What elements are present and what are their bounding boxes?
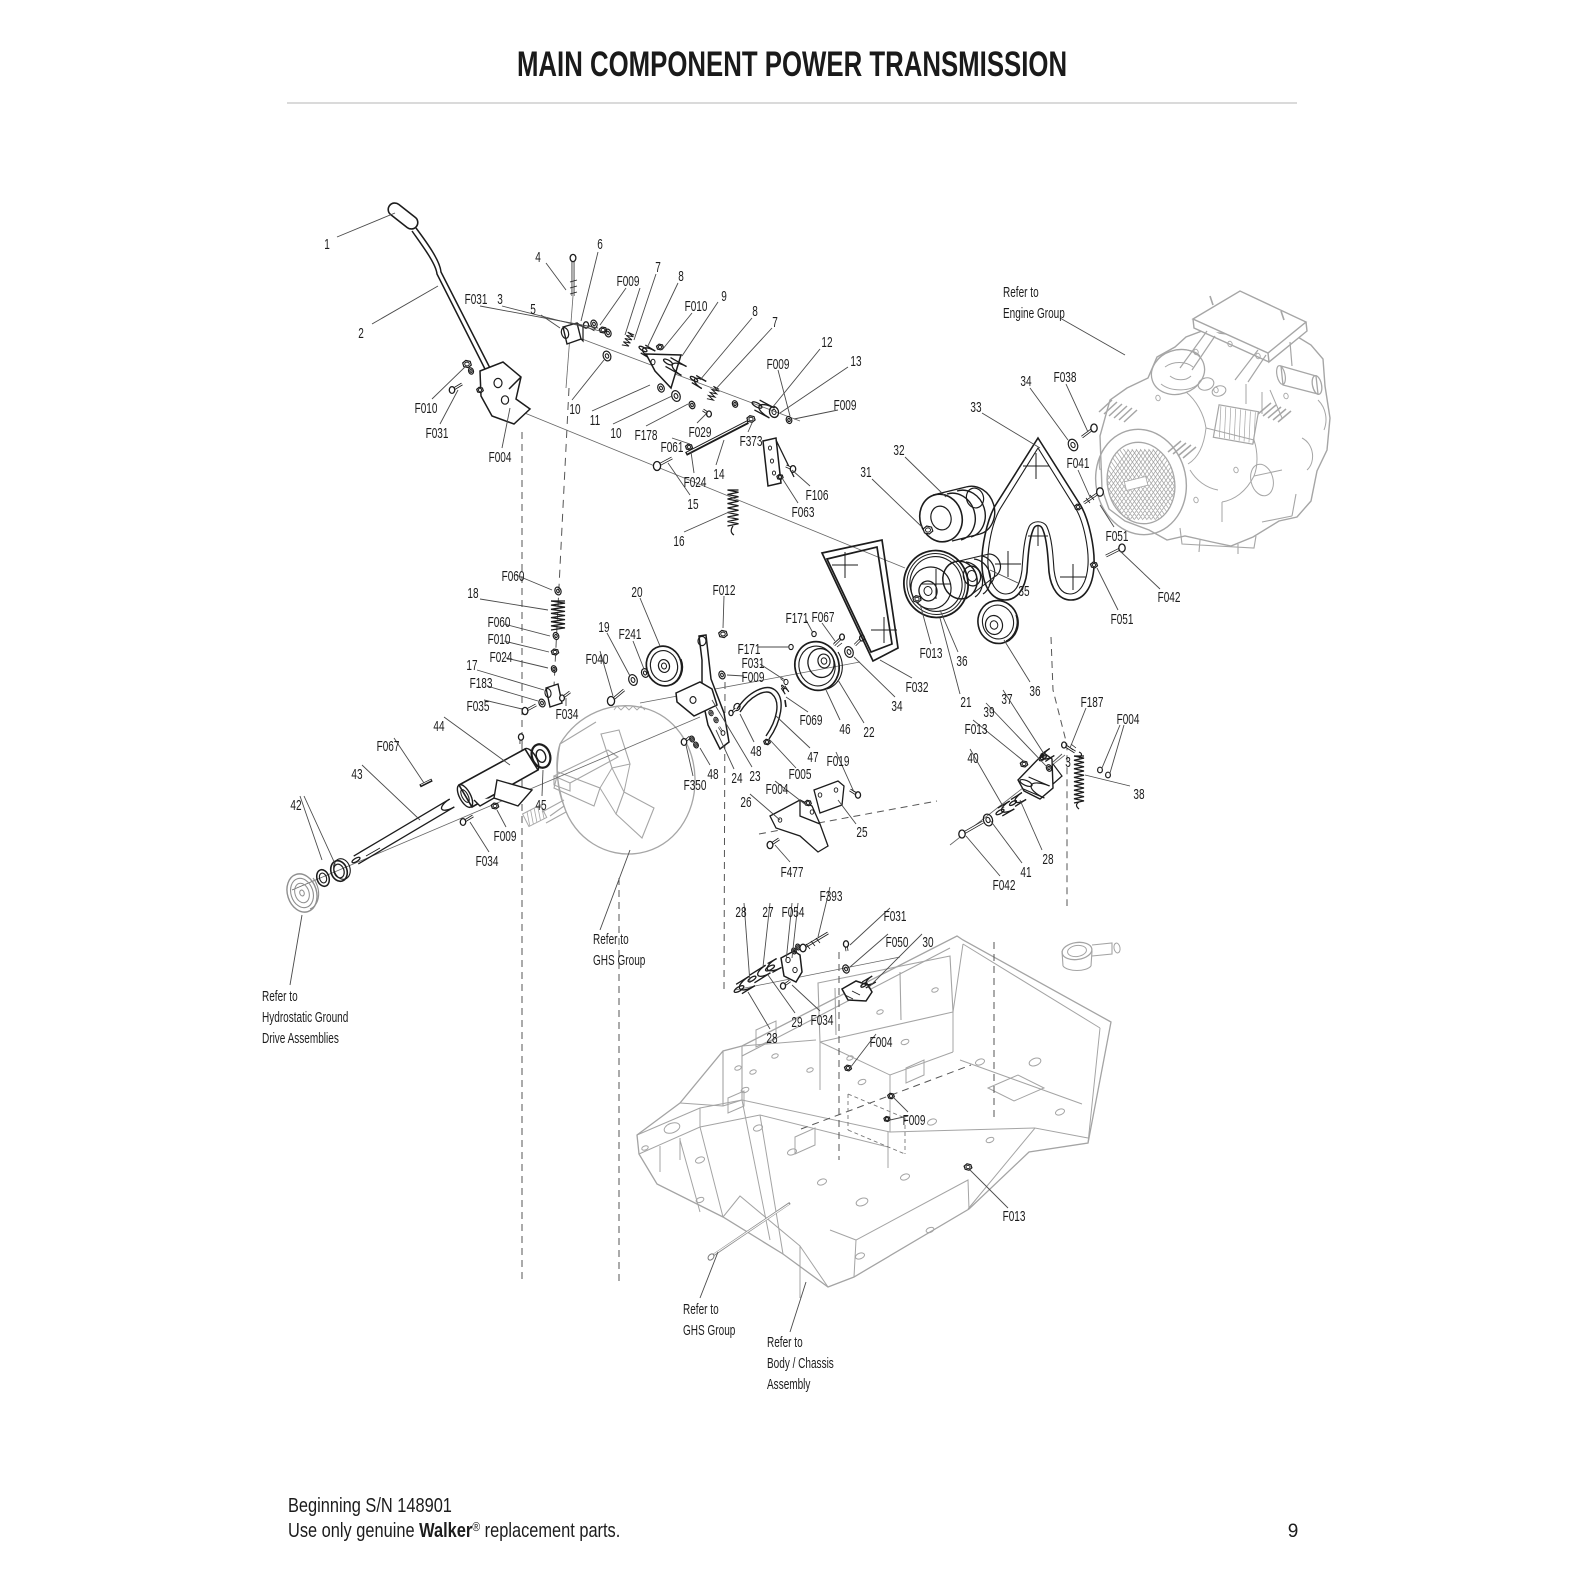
svg-text:F019: F019: [827, 752, 850, 770]
svg-text:10: 10: [610, 424, 621, 442]
svg-text:24: 24: [731, 769, 742, 787]
svg-text:Refer to: Refer to: [767, 1333, 803, 1351]
svg-text:F069: F069: [800, 711, 823, 729]
svg-text:32: 32: [893, 441, 904, 459]
svg-text:F034: F034: [556, 705, 579, 723]
svg-text:F042: F042: [1158, 588, 1181, 606]
svg-text:F051: F051: [1111, 610, 1134, 628]
svg-text:F024: F024: [684, 473, 707, 491]
svg-text:F004: F004: [1117, 710, 1140, 728]
svg-text:F050: F050: [886, 933, 909, 951]
svg-text:F010: F010: [488, 630, 511, 648]
svg-text:35: 35: [1018, 582, 1029, 600]
svg-text:F060: F060: [502, 567, 525, 585]
svg-text:30: 30: [922, 933, 933, 951]
svg-text:F477: F477: [781, 863, 804, 881]
svg-text:33: 33: [970, 398, 981, 416]
svg-text:40: 40: [967, 749, 978, 767]
svg-text:20: 20: [631, 583, 642, 601]
svg-text:16: 16: [673, 532, 684, 550]
svg-text:34: 34: [1020, 372, 1031, 390]
svg-text:11: 11: [590, 411, 600, 429]
svg-text:F061: F061: [661, 438, 684, 456]
svg-text:45: 45: [535, 796, 546, 814]
svg-text:F029: F029: [689, 423, 712, 441]
svg-text:F054: F054: [782, 903, 805, 921]
svg-text:F009: F009: [742, 668, 765, 686]
svg-text:F067: F067: [812, 608, 835, 626]
svg-text:7: 7: [772, 313, 778, 331]
svg-text:F009: F009: [903, 1111, 926, 1129]
svg-text:6: 6: [597, 235, 603, 253]
svg-text:F009: F009: [494, 827, 517, 845]
svg-text:Refer to: Refer to: [1003, 283, 1039, 301]
svg-text:F040: F040: [586, 650, 609, 668]
svg-text:F183: F183: [470, 674, 493, 692]
svg-text:Refer to: Refer to: [593, 930, 629, 948]
svg-text:F009: F009: [617, 272, 640, 290]
svg-text:F041: F041: [1067, 454, 1090, 472]
svg-text:F012: F012: [713, 581, 736, 599]
svg-text:F013: F013: [965, 720, 988, 738]
svg-text:8: 8: [678, 267, 684, 285]
svg-text:41: 41: [1020, 863, 1031, 881]
svg-text:F373: F373: [740, 432, 763, 450]
svg-text:F060: F060: [488, 613, 511, 631]
svg-text:Beginning S/N 148901: Beginning S/N 148901: [288, 1493, 452, 1516]
svg-text:F051: F051: [1106, 527, 1129, 545]
svg-text:F004: F004: [870, 1033, 893, 1051]
svg-text:F241: F241: [619, 625, 642, 643]
svg-text:14: 14: [713, 465, 724, 483]
svg-text:28: 28: [1042, 850, 1053, 868]
svg-text:48: 48: [750, 742, 761, 760]
svg-text:F031: F031: [465, 290, 488, 308]
svg-text:Body / Chassis: Body / Chassis: [767, 1354, 834, 1372]
svg-text:F067: F067: [377, 737, 400, 755]
svg-text:29: 29: [791, 1013, 802, 1031]
svg-text:GHS Group: GHS Group: [593, 951, 645, 969]
svg-text:GHS Group: GHS Group: [683, 1321, 735, 1339]
svg-text:34: 34: [891, 697, 902, 715]
svg-text:25: 25: [856, 823, 867, 841]
svg-text:46: 46: [839, 720, 850, 738]
svg-text:F178: F178: [635, 426, 658, 444]
svg-text:F038: F038: [1054, 368, 1077, 386]
svg-text:Refer to: Refer to: [262, 987, 298, 1005]
svg-text:48: 48: [707, 765, 718, 783]
svg-text:36: 36: [956, 652, 967, 670]
svg-text:1: 1: [324, 235, 330, 253]
svg-text:28: 28: [735, 903, 746, 921]
svg-text:F010: F010: [685, 297, 708, 315]
svg-text:F106: F106: [806, 486, 829, 504]
svg-text:12: 12: [821, 333, 832, 351]
svg-text:F350: F350: [684, 776, 707, 794]
svg-text:F187: F187: [1081, 693, 1104, 711]
svg-text:Hydrostatic Ground: Hydrostatic Ground: [262, 1008, 348, 1026]
svg-text:Use only genuine Walker® repla: Use only genuine Walker® replacement par…: [288, 1518, 620, 1541]
svg-text:F024: F024: [490, 648, 513, 666]
svg-text:43: 43: [351, 765, 362, 783]
svg-text:10: 10: [569, 400, 580, 418]
svg-text:13: 13: [850, 352, 861, 370]
svg-text:39: 39: [983, 703, 994, 721]
svg-text:F063: F063: [792, 503, 815, 521]
svg-text:3: 3: [497, 290, 503, 308]
svg-text:F393: F393: [820, 887, 843, 905]
svg-text:F032: F032: [906, 678, 929, 696]
svg-text:F010: F010: [415, 399, 438, 417]
svg-text:38: 38: [1133, 785, 1144, 803]
svg-text:F034: F034: [476, 852, 499, 870]
svg-text:F004: F004: [766, 780, 789, 798]
svg-text:F013: F013: [920, 644, 943, 662]
svg-text:26: 26: [740, 793, 751, 811]
svg-text:18: 18: [467, 584, 478, 602]
svg-text:7: 7: [655, 258, 661, 276]
svg-text:17: 17: [466, 656, 477, 674]
svg-text:27: 27: [762, 903, 773, 921]
svg-text:19: 19: [598, 618, 609, 636]
svg-text:21: 21: [960, 693, 971, 711]
svg-text:36: 36: [1029, 682, 1040, 700]
svg-text:31: 31: [860, 463, 871, 481]
svg-text:3: 3: [1065, 753, 1071, 771]
svg-text:F009: F009: [834, 396, 857, 414]
svg-text:F031: F031: [884, 907, 907, 925]
svg-text:47: 47: [807, 748, 818, 766]
svg-text:F005: F005: [789, 765, 812, 783]
svg-text:F171: F171: [786, 609, 809, 627]
svg-text:37: 37: [1001, 690, 1012, 708]
svg-text:15: 15: [687, 495, 698, 513]
svg-text:8: 8: [752, 302, 758, 320]
svg-text:F009: F009: [767, 355, 790, 373]
svg-text:22: 22: [863, 723, 874, 741]
svg-text:F004: F004: [489, 448, 512, 466]
svg-text:44: 44: [433, 717, 444, 735]
svg-text:F034: F034: [811, 1011, 834, 1029]
svg-text:F035: F035: [467, 697, 490, 715]
svg-text:F042: F042: [993, 876, 1016, 894]
svg-text:23: 23: [749, 767, 760, 785]
svg-text:Assembly: Assembly: [767, 1375, 811, 1393]
svg-text:5: 5: [530, 300, 536, 318]
svg-text:4: 4: [535, 248, 541, 266]
svg-text:9: 9: [721, 287, 727, 305]
svg-text:28: 28: [766, 1029, 777, 1047]
svg-text:F013: F013: [1003, 1207, 1026, 1225]
svg-text:Refer to: Refer to: [683, 1300, 719, 1318]
svg-text:Engine Group: Engine Group: [1003, 304, 1065, 322]
svg-text:9: 9: [1288, 1521, 1299, 1542]
svg-text:2: 2: [358, 324, 364, 342]
svg-text:Drive Assemblies: Drive Assemblies: [262, 1029, 339, 1047]
svg-text:F031: F031: [426, 424, 449, 442]
svg-text:42: 42: [290, 796, 301, 814]
svg-text:MAIN COMPONENT POWER TRANSMISS: MAIN COMPONENT POWER TRANSMISSION: [517, 44, 1067, 84]
